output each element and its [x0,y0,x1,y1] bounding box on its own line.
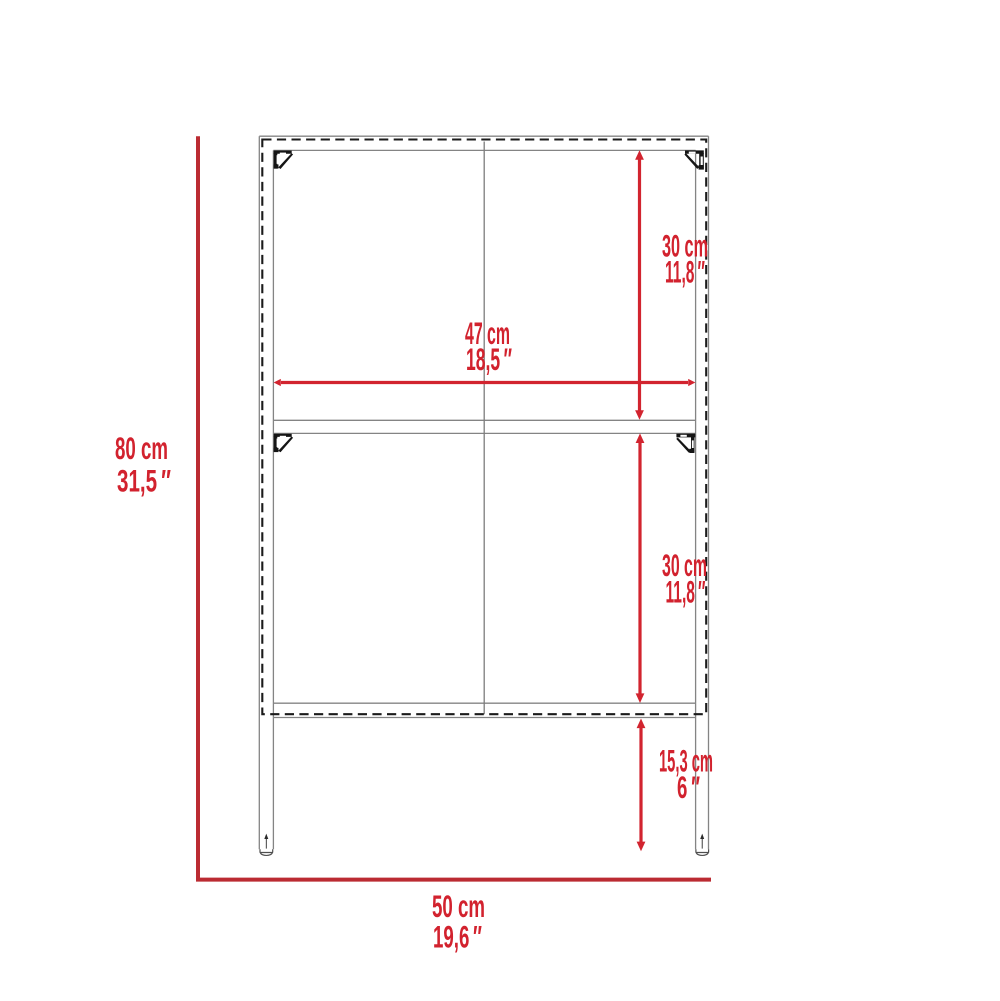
svg-text:18,5 ″: 18,5 ″ [466,341,512,377]
svg-text:19,6 ″: 19,6 ″ [433,919,482,955]
svg-text:6 ″: 6 ″ [677,769,700,805]
svg-text:31,5 ″: 31,5 ″ [117,463,171,499]
svg-text:80 cm: 80 cm [115,430,168,466]
svg-text:11,8 ″: 11,8 ″ [665,254,705,290]
svg-text:11,8 ″: 11,8 ″ [666,574,706,610]
